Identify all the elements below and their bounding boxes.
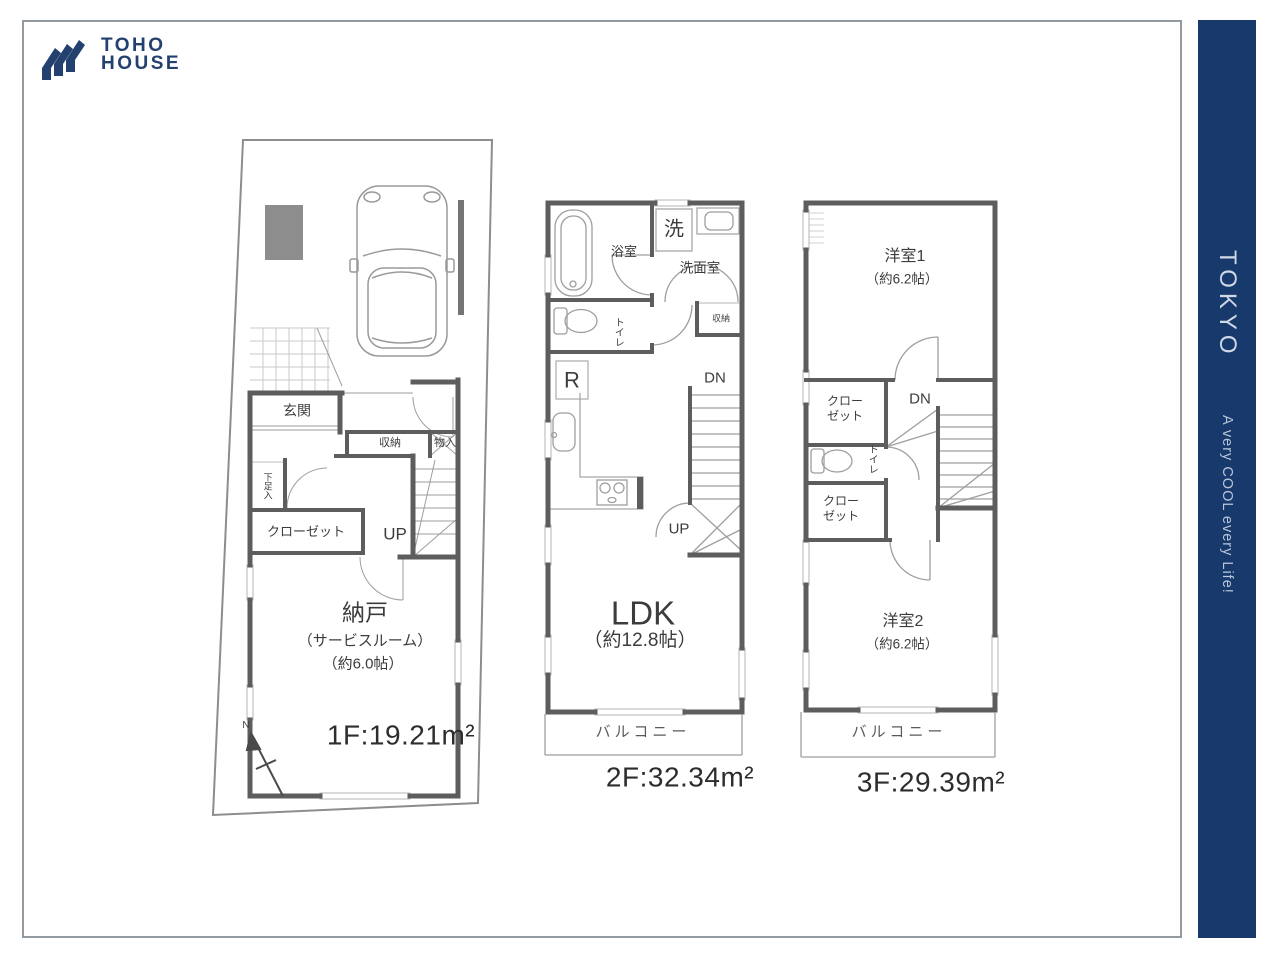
banner-tagline: A very COOL every Life! (1219, 415, 1235, 594)
room-label-nando: 納戸 (342, 599, 388, 628)
room-label-closet1-3f: クローゼット (822, 394, 868, 424)
room-label-closet-1f: クローゼット (267, 524, 345, 540)
room-label-closet2-3f: クローゼット (818, 494, 864, 524)
room-label-nando-size: （約6.0帖） (323, 656, 404, 675)
room-label-shoe-box: 下足入 (261, 473, 272, 500)
room-label-washroom: 洗面室 (680, 261, 721, 278)
right-banner: TOKYO A very COOL every Life! (1198, 20, 1256, 938)
room-label-toilet-2f: トイレ (611, 317, 624, 347)
brand-line2: HOUSE (101, 55, 181, 73)
compass-north-label: N (242, 720, 249, 733)
room-label-genkan: 玄関 (283, 402, 311, 420)
room-label-bath: 浴室 (611, 244, 637, 260)
room-label-room2: 洋室2 (883, 612, 924, 632)
room-label-shuno-2f: 収納 (712, 313, 730, 324)
room-label-toilet-3f: トイレ (865, 444, 878, 474)
stairs-dn-label-2f: DN (704, 370, 726, 389)
banner-title: TOKYO (1213, 250, 1241, 359)
balcony-label-2f: バルコニー (596, 724, 691, 743)
room-label-shuno-1f: 収納 (379, 437, 401, 451)
balcony-label-3f: バルコニー (852, 724, 947, 743)
floorplan-2f-drawing (540, 195, 750, 795)
floor-area-2f: 2F:32.34m² (606, 760, 754, 795)
fridge-space-label: R (564, 366, 580, 394)
toho-house-logo-icon (40, 34, 92, 84)
floorplan-3f: 洋室1 （約6.2帖） クローゼット DN トイレ クローゼット 洋室2 （約6… (798, 195, 1003, 795)
brand-logo-text: TOHO HOUSE (101, 37, 181, 73)
floorplan-1f: 玄関 収納 物入 下足入 クローゼット UP 納戸 （サービスルーム） （約6.… (205, 128, 505, 828)
floor-area-3f: 3F:29.39m² (857, 765, 1005, 800)
brand-logo: TOHO HOUSE (40, 34, 181, 84)
floorplan-2f: 浴室 洗 洗面室 収納 トイレ R DN UP LDK （約12.8帖） バルコ… (540, 195, 750, 795)
floor-area-1f: 1F:19.21m² (327, 718, 475, 753)
room-label-laundry: 洗 (664, 218, 684, 243)
room-label-room1-size: （約6.2帖） (866, 272, 939, 289)
room-label-nando-type: （サービスルーム） (298, 633, 433, 652)
stairs-up-label-1f: UP (383, 523, 407, 544)
stairs-dn-label-3f: DN (909, 391, 931, 410)
stairs-up-label-2f: UP (669, 521, 690, 540)
room-label-ldk: LDK (611, 592, 675, 633)
room-label-monoire: 物入 (434, 437, 456, 451)
room-label-room1: 洋室1 (885, 247, 926, 267)
room-label-room2-size: （約6.2帖） (866, 637, 939, 654)
room-label-ldk-size: （約12.8帖） (584, 629, 697, 653)
